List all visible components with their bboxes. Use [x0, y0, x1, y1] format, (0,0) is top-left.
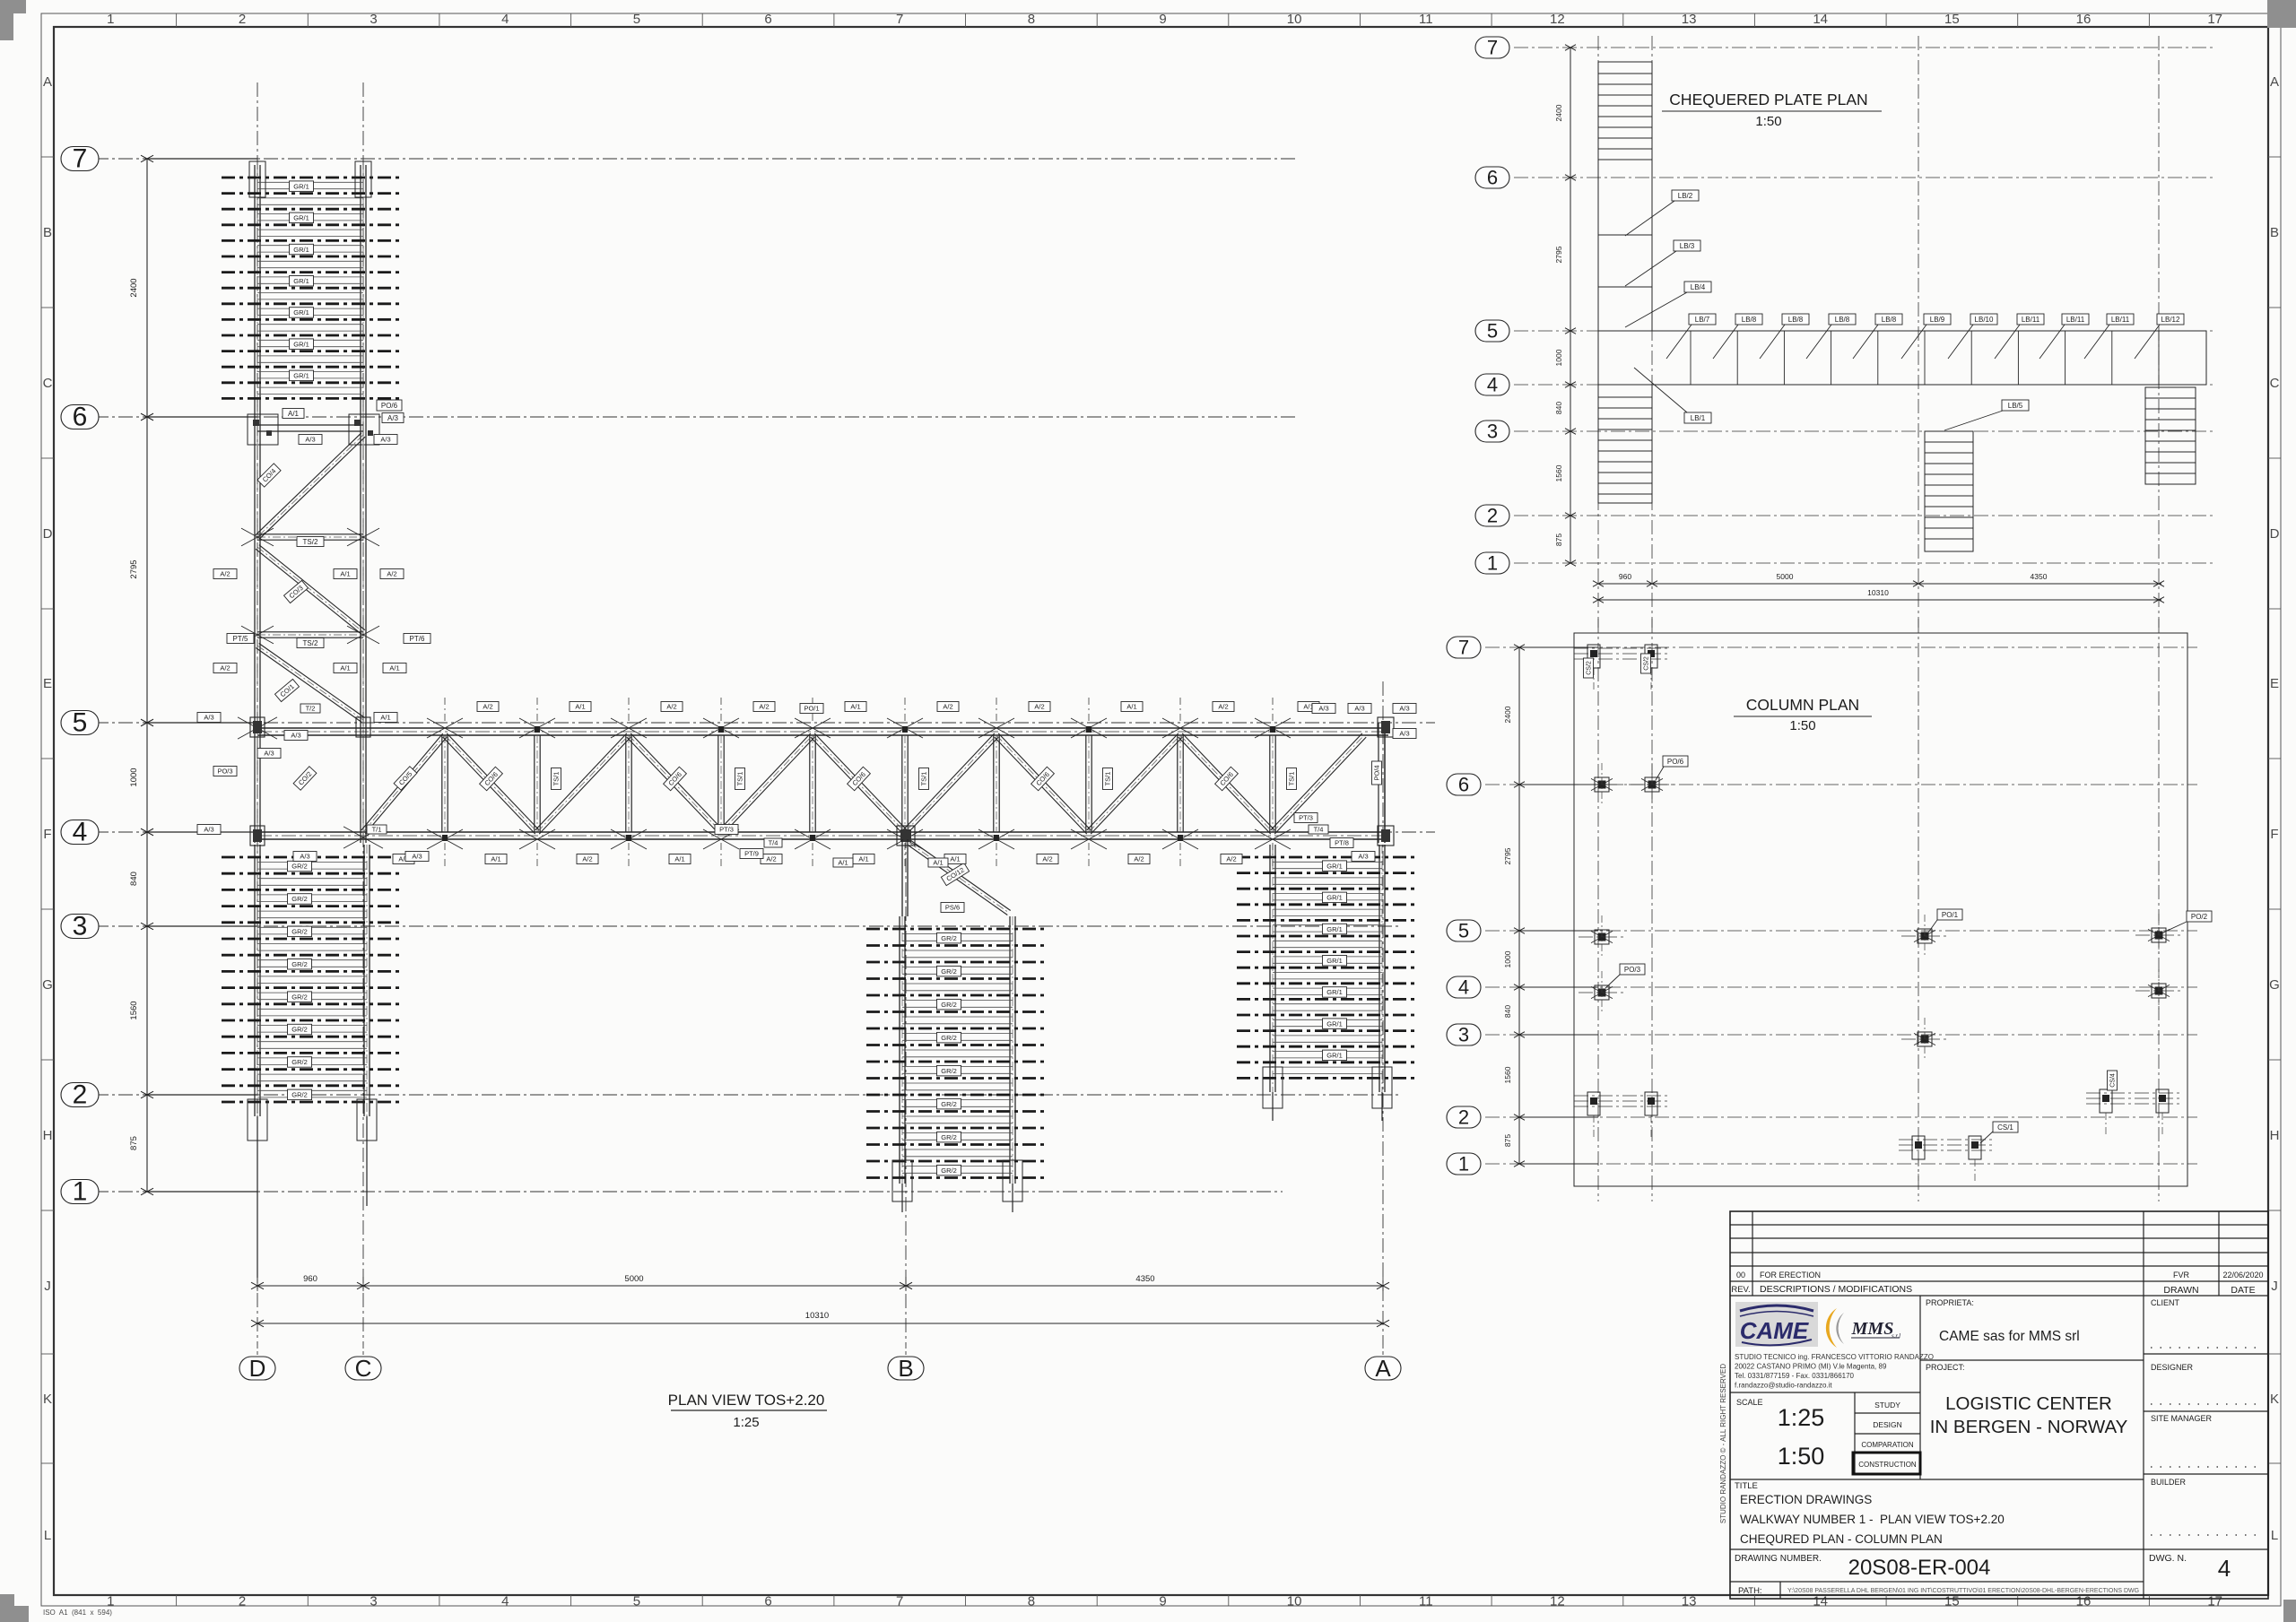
- svg-text:6: 6: [1487, 167, 1498, 189]
- svg-text:GR/2: GR/2: [941, 1133, 957, 1141]
- svg-text:PROPRIETA:: PROPRIETA:: [1926, 1298, 1974, 1307]
- svg-text:Tel. 0331/877159 - Fax. 0331/8: Tel. 0331/877159 - Fax. 0331/866170: [1735, 1372, 1855, 1380]
- svg-text:2795: 2795: [129, 559, 139, 578]
- svg-text:FOR ERECTION: FOR ERECTION: [1760, 1271, 1821, 1279]
- svg-text:PLAN VIEW TOS+2.20: PLAN VIEW TOS+2.20: [668, 1392, 825, 1409]
- svg-text:875: 875: [1503, 1134, 1512, 1147]
- svg-text:BUILDER: BUILDER: [2151, 1478, 2187, 1487]
- svg-text:PT/3: PT/3: [1299, 814, 1313, 822]
- svg-text:DESCRIPTIONS / MODIFICATIONS: DESCRIPTIONS / MODIFICATIONS: [1760, 1284, 1912, 1295]
- svg-text:PO/1: PO/1: [804, 705, 819, 713]
- svg-text:14: 14: [1813, 12, 1828, 27]
- svg-text:A/1: A/1: [389, 664, 399, 672]
- svg-text:GR/2: GR/2: [291, 1091, 308, 1099]
- svg-text:FVR: FVR: [2173, 1271, 2190, 1279]
- svg-text:F: F: [43, 827, 51, 842]
- svg-text:B: B: [2270, 225, 2279, 240]
- svg-text:E: E: [2270, 676, 2279, 691]
- svg-text:5000: 5000: [1777, 572, 1794, 581]
- svg-text:C: C: [43, 376, 53, 391]
- svg-text:10: 10: [1287, 12, 1302, 27]
- svg-text:H: H: [2270, 1128, 2280, 1143]
- svg-text:GR/1: GR/1: [1326, 1052, 1343, 1060]
- svg-text:K: K: [2270, 1392, 2279, 1407]
- svg-text:4: 4: [501, 1594, 509, 1609]
- svg-text:8: 8: [1028, 12, 1035, 27]
- svg-text:1:50: 1:50: [1789, 718, 1815, 733]
- svg-text:LOGISTIC CENTER: LOGISTIC CENTER: [1945, 1393, 2112, 1414]
- svg-text:A/3: A/3: [204, 826, 213, 834]
- svg-text:A/2: A/2: [387, 570, 396, 578]
- svg-text:L: L: [2271, 1528, 2278, 1543]
- svg-text:A/1: A/1: [674, 855, 684, 863]
- svg-text:7: 7: [896, 12, 903, 27]
- svg-text:A/3: A/3: [387, 414, 399, 422]
- svg-text:A/3: A/3: [380, 436, 390, 444]
- svg-text:A/3: A/3: [300, 853, 309, 861]
- svg-text:J: J: [2271, 1279, 2278, 1294]
- svg-text:G: G: [2269, 977, 2280, 993]
- svg-text:A/1: A/1: [491, 855, 500, 863]
- svg-text:PO/1: PO/1: [1942, 911, 1959, 919]
- svg-text:A/1: A/1: [340, 664, 350, 672]
- svg-text:DWG. N.: DWG. N.: [2149, 1553, 2187, 1564]
- svg-text:A/3: A/3: [291, 732, 300, 740]
- svg-text:PO/3: PO/3: [217, 768, 232, 776]
- svg-text:11: 11: [1419, 1594, 1433, 1609]
- svg-text:960: 960: [303, 1274, 317, 1284]
- svg-text:T/4: T/4: [1314, 826, 1324, 834]
- svg-text:A/3: A/3: [264, 750, 274, 758]
- svg-text:2: 2: [73, 1080, 88, 1110]
- svg-text:TS/2: TS/2: [303, 538, 318, 546]
- svg-text:CAME: CAME: [1740, 1317, 1809, 1344]
- svg-text:13: 13: [1682, 12, 1697, 27]
- svg-text:A/2: A/2: [1134, 855, 1144, 863]
- svg-text:2400: 2400: [1503, 706, 1512, 723]
- svg-text:1560: 1560: [1554, 464, 1563, 481]
- svg-text:DRAWING NUMBER.: DRAWING NUMBER.: [1735, 1554, 1822, 1564]
- svg-text:GR/1: GR/1: [293, 277, 309, 285]
- svg-text:GR/2: GR/2: [941, 1067, 957, 1075]
- svg-text:1: 1: [73, 1177, 88, 1207]
- svg-text:ISO A1 (841 x 594): ISO A1 (841 x 594): [43, 1609, 112, 1617]
- svg-text:LB/9: LB/9: [1930, 316, 1945, 324]
- svg-text:GR/1: GR/1: [293, 214, 309, 222]
- svg-text:CS/2: CS/2: [1587, 661, 1593, 675]
- svg-text:2: 2: [1487, 505, 1498, 527]
- svg-text:PO/6: PO/6: [1667, 758, 1684, 766]
- svg-text:840: 840: [129, 872, 139, 886]
- svg-text:T/1: T/1: [372, 826, 382, 834]
- svg-text:IN BERGEN - NORWAY: IN BERGEN - NORWAY: [1930, 1417, 2128, 1437]
- svg-text:B: B: [43, 225, 52, 240]
- svg-text:3: 3: [1487, 421, 1498, 443]
- svg-text:7: 7: [896, 1594, 903, 1609]
- svg-text:LB/7: LB/7: [1695, 316, 1710, 324]
- svg-text:GR/2: GR/2: [291, 960, 308, 968]
- svg-text:GR/1: GR/1: [1326, 957, 1343, 965]
- svg-text:CLIENT: CLIENT: [2151, 1298, 2180, 1307]
- svg-text:GR/1: GR/1: [1326, 925, 1343, 933]
- svg-text:LB/10: LB/10: [1975, 316, 1994, 324]
- svg-text:PO/6: PO/6: [381, 402, 398, 410]
- svg-text:16: 16: [2076, 1594, 2092, 1609]
- svg-text:6: 6: [764, 12, 771, 27]
- svg-text:CHEQUERED PLATE PLAN: CHEQUERED PLATE PLAN: [1669, 91, 1867, 108]
- svg-text:LB/8: LB/8: [1882, 316, 1897, 324]
- svg-text:LB/3: LB/3: [1680, 242, 1695, 250]
- svg-text:A/3: A/3: [1318, 705, 1328, 713]
- svg-text:875: 875: [1554, 533, 1563, 546]
- svg-text:2: 2: [1458, 1106, 1469, 1129]
- svg-text:1560: 1560: [1503, 1066, 1512, 1083]
- svg-text:LB/11: LB/11: [2066, 316, 2085, 324]
- svg-text:LB/4: LB/4: [1691, 283, 1706, 291]
- svg-text:A/3: A/3: [412, 853, 422, 861]
- svg-text:DATE: DATE: [2231, 1285, 2255, 1296]
- svg-text:TS/1: TS/1: [920, 772, 928, 786]
- svg-text:5: 5: [633, 12, 640, 27]
- svg-text:A/3: A/3: [305, 436, 315, 444]
- svg-text:GR/2: GR/2: [941, 1100, 957, 1108]
- svg-text:DESIGN: DESIGN: [1873, 1420, 1902, 1429]
- svg-text:TS/1: TS/1: [1104, 772, 1112, 786]
- svg-text:LB/12: LB/12: [2161, 316, 2180, 324]
- svg-text:2: 2: [239, 12, 246, 27]
- svg-text:5: 5: [73, 708, 88, 738]
- svg-text:TS/1: TS/1: [1288, 772, 1296, 786]
- svg-text:GR/1: GR/1: [293, 340, 309, 348]
- svg-text:A/2: A/2: [1226, 855, 1236, 863]
- svg-text:A/3: A/3: [1358, 853, 1368, 861]
- svg-text:A/2: A/2: [666, 703, 676, 711]
- svg-text:ERECTION DRAWINGS: ERECTION DRAWINGS: [1740, 1493, 1872, 1506]
- svg-text:GR/1: GR/1: [1326, 988, 1343, 996]
- svg-text:D: D: [2270, 526, 2280, 542]
- svg-text:A/2: A/2: [1218, 703, 1228, 711]
- svg-text:LB/8: LB/8: [1742, 316, 1757, 324]
- svg-text:A/1: A/1: [575, 703, 585, 711]
- svg-text:REV.: REV.: [1731, 1285, 1750, 1295]
- svg-text:TS/1: TS/1: [552, 772, 561, 786]
- svg-text:10310: 10310: [805, 1311, 829, 1321]
- svg-text:1:50: 1:50: [1755, 114, 1781, 129]
- svg-text:A/1: A/1: [380, 714, 390, 722]
- svg-text:13: 13: [1682, 1594, 1697, 1609]
- svg-text:GR/1: GR/1: [293, 308, 309, 317]
- svg-text:PS/6: PS/6: [945, 904, 960, 912]
- svg-text:TS/2: TS/2: [303, 639, 318, 647]
- svg-text:f.randazzo@studio-randazzo.it: f.randazzo@studio-randazzo.it: [1735, 1382, 1832, 1390]
- svg-text:4: 4: [73, 818, 88, 847]
- svg-text:J: J: [44, 1279, 51, 1294]
- svg-text:DESIGNER: DESIGNER: [2151, 1363, 2194, 1372]
- svg-text:STUDY: STUDY: [1874, 1401, 1900, 1409]
- svg-text:1560: 1560: [129, 1001, 139, 1019]
- svg-text:5: 5: [633, 1594, 640, 1609]
- svg-text:GR/2: GR/2: [291, 1058, 308, 1066]
- svg-text:1:50: 1:50: [1778, 1443, 1825, 1470]
- svg-text:F: F: [2270, 827, 2278, 842]
- svg-text:LB/11: LB/11: [2022, 316, 2040, 324]
- svg-text:A/3: A/3: [1399, 730, 1409, 738]
- svg-text:1:25: 1:25: [1778, 1404, 1825, 1431]
- svg-text:GR/2: GR/2: [941, 934, 957, 942]
- svg-text:4: 4: [501, 12, 509, 27]
- svg-text:A/1: A/1: [950, 855, 960, 863]
- svg-text:840: 840: [1554, 402, 1563, 414]
- svg-text:G: G: [42, 977, 53, 993]
- svg-text:PT/8: PT/8: [1335, 839, 1349, 847]
- svg-text:A/3: A/3: [1354, 705, 1364, 713]
- svg-text:A/2: A/2: [483, 703, 492, 711]
- svg-text:2795: 2795: [1503, 847, 1512, 864]
- svg-text:E: E: [43, 676, 52, 691]
- svg-text:2400: 2400: [129, 278, 139, 297]
- svg-text:GR/1: GR/1: [293, 372, 309, 380]
- svg-text:A: A: [1375, 1355, 1391, 1382]
- svg-text:960: 960: [1619, 572, 1631, 581]
- svg-text:CS/4: CS/4: [2110, 1073, 2117, 1088]
- svg-text:GR/2: GR/2: [941, 967, 957, 976]
- svg-text:A/1: A/1: [850, 703, 860, 711]
- svg-text:6: 6: [764, 1594, 771, 1609]
- svg-text:T/2: T/2: [306, 705, 316, 713]
- svg-text:LB/11: LB/11: [2111, 316, 2130, 324]
- svg-text:L: L: [44, 1528, 51, 1543]
- svg-text:LB/5: LB/5: [2008, 402, 2023, 410]
- svg-text:GR/2: GR/2: [291, 895, 308, 903]
- svg-text:12: 12: [1550, 1594, 1565, 1609]
- svg-text:A/1: A/1: [858, 855, 868, 863]
- svg-text:7: 7: [1458, 637, 1469, 659]
- svg-text:C: C: [355, 1355, 372, 1382]
- svg-text:3: 3: [370, 1594, 377, 1609]
- svg-text:B: B: [898, 1355, 913, 1382]
- svg-text:LB/8: LB/8: [1835, 316, 1850, 324]
- svg-text:5000: 5000: [624, 1274, 643, 1284]
- svg-text:CONSTRUCTION: CONSTRUCTION: [1858, 1461, 1917, 1469]
- svg-text:A: A: [43, 74, 52, 90]
- svg-text:875: 875: [129, 1136, 139, 1150]
- svg-text:1000: 1000: [1554, 349, 1563, 366]
- svg-text:3: 3: [370, 12, 377, 27]
- svg-text:GR/1: GR/1: [293, 182, 309, 190]
- svg-text:SITE MANAGER: SITE MANAGER: [2151, 1414, 2213, 1423]
- svg-text:15: 15: [1944, 1594, 1960, 1609]
- svg-text:WALKWAY NUMBER 1 - PLAN VIEW: WALKWAY NUMBER 1 - PLAN VIEW TOS+2.20: [1740, 1513, 2005, 1526]
- svg-text:CHEQURED PLAN - COLUMN PLAN: CHEQURED PLAN - COLUMN PLAN: [1740, 1532, 1943, 1546]
- svg-text:TS/1: TS/1: [736, 772, 744, 786]
- svg-text:A/1: A/1: [288, 410, 300, 418]
- svg-text:GR/1: GR/1: [1326, 862, 1343, 870]
- svg-text:A/2: A/2: [220, 570, 230, 578]
- svg-text:1000: 1000: [129, 768, 139, 786]
- svg-text:20S08-ER-004: 20S08-ER-004: [1848, 1556, 1991, 1580]
- svg-text:16: 16: [2076, 12, 2092, 27]
- svg-text:LB/2: LB/2: [1678, 192, 1693, 200]
- svg-text:A/2: A/2: [759, 703, 769, 711]
- svg-text:17: 17: [2207, 1594, 2222, 1609]
- svg-text:PO/2: PO/2: [2191, 913, 2208, 921]
- svg-text:3: 3: [1458, 1024, 1469, 1046]
- svg-text:840: 840: [1503, 1005, 1512, 1018]
- svg-text:4350: 4350: [2031, 572, 2048, 581]
- svg-text:5: 5: [1458, 920, 1469, 942]
- svg-text:A/2: A/2: [1042, 855, 1052, 863]
- svg-text:10310: 10310: [1867, 588, 1889, 597]
- svg-text:C: C: [2270, 376, 2280, 391]
- svg-text:COMPARATION: COMPARATION: [1861, 1441, 1914, 1449]
- svg-text:CS/1: CS/1: [1997, 1123, 2013, 1132]
- svg-text:1:25: 1:25: [733, 1415, 759, 1430]
- svg-text:GR/2: GR/2: [291, 993, 308, 1001]
- svg-text:9: 9: [1159, 1594, 1166, 1609]
- svg-text:CS/2: CS/2: [1644, 656, 1650, 671]
- svg-text:PO/3: PO/3: [1624, 966, 1641, 974]
- svg-text:COLUMN PLAN: COLUMN PLAN: [1746, 696, 1859, 714]
- svg-text:PT/9: PT/9: [744, 850, 759, 858]
- svg-text:10: 10: [1287, 1594, 1302, 1609]
- svg-text:STUDIO RANDAZZO © - ALL RIGHT: STUDIO RANDAZZO © - ALL RIGHT RESERVED: [1719, 1364, 1727, 1523]
- svg-text:PO/4: PO/4: [1373, 765, 1381, 780]
- svg-text:GR/1: GR/1: [293, 246, 309, 254]
- svg-text:2: 2: [239, 1594, 246, 1609]
- svg-text:6: 6: [1458, 774, 1469, 796]
- svg-text:2400: 2400: [1554, 104, 1563, 121]
- svg-text:2795: 2795: [1554, 246, 1563, 263]
- svg-text:GR/2: GR/2: [291, 1026, 308, 1034]
- svg-text:4: 4: [1458, 976, 1469, 999]
- svg-text:15: 15: [1944, 12, 1960, 27]
- svg-text:MMS: MMS: [1851, 1319, 1894, 1339]
- svg-text:9: 9: [1159, 12, 1166, 27]
- svg-text:A/3: A/3: [204, 714, 213, 722]
- svg-text:PT/3: PT/3: [719, 826, 734, 834]
- svg-text:PT/5: PT/5: [233, 635, 248, 643]
- svg-text:6: 6: [73, 403, 88, 432]
- svg-text:LB/8: LB/8: [1788, 316, 1804, 324]
- svg-text:DRAWN: DRAWN: [2163, 1285, 2198, 1296]
- svg-text:A: A: [2270, 74, 2279, 90]
- svg-text:A/2: A/2: [943, 703, 952, 711]
- svg-text:1000: 1000: [1503, 950, 1512, 967]
- svg-text:H: H: [43, 1128, 53, 1143]
- svg-text:3: 3: [73, 912, 88, 941]
- svg-text:D: D: [43, 526, 53, 542]
- svg-text:LB/1: LB/1: [1691, 414, 1706, 422]
- svg-text:1: 1: [107, 12, 114, 27]
- svg-text:GR/1: GR/1: [1326, 1019, 1343, 1028]
- svg-text:GR/2: GR/2: [941, 1001, 957, 1009]
- svg-text:00: 00: [1736, 1271, 1745, 1279]
- svg-text:17: 17: [2207, 12, 2222, 27]
- svg-text:A/3: A/3: [1399, 705, 1409, 713]
- svg-text:PT/6: PT/6: [410, 635, 425, 643]
- svg-text:7: 7: [73, 144, 88, 174]
- svg-text:14: 14: [1813, 1594, 1828, 1609]
- svg-text:1: 1: [1458, 1153, 1469, 1175]
- svg-text:GR/2: GR/2: [941, 1167, 957, 1175]
- svg-text:Y:\20S08 PASSERELLA DHL BERGEN: Y:\20S08 PASSERELLA DHL BERGEN\01 ING IN…: [1787, 1588, 2139, 1594]
- svg-text:s.r.l: s.r.l: [1892, 1332, 1900, 1340]
- svg-text:CAME sas for MMS srl: CAME sas for MMS srl: [1939, 1329, 2080, 1344]
- svg-text:20022 CASTANO PRIMO (MI) V.le: 20022 CASTANO PRIMO (MI) V.le Magenta, 8…: [1735, 1363, 1887, 1371]
- svg-text:4350: 4350: [1135, 1274, 1154, 1284]
- svg-text:A/2: A/2: [220, 664, 230, 672]
- svg-text:1: 1: [107, 1594, 114, 1609]
- svg-text:A/2: A/2: [766, 855, 776, 863]
- svg-text:4: 4: [2218, 1555, 2231, 1582]
- svg-text:A/1: A/1: [340, 570, 350, 578]
- svg-text:A/1: A/1: [933, 859, 943, 867]
- svg-text:STUDIO TECNICO ing. FRANCESCO: STUDIO TECNICO ing. FRANCESCO VITTORIO R…: [1735, 1353, 1934, 1361]
- svg-text:PATH:: PATH:: [1738, 1586, 1762, 1596]
- svg-text:GR/2: GR/2: [291, 863, 308, 871]
- svg-text:T/4: T/4: [769, 839, 778, 847]
- svg-text:GR/1: GR/1: [1326, 894, 1343, 902]
- svg-text:22/06/2020: 22/06/2020: [2222, 1271, 2263, 1279]
- svg-text:K: K: [43, 1392, 52, 1407]
- svg-text:GR/2: GR/2: [291, 928, 308, 936]
- svg-text:PROJECT:: PROJECT:: [1926, 1363, 1965, 1372]
- svg-text:SCALE: SCALE: [1736, 1398, 1763, 1407]
- svg-text:D: D: [249, 1355, 266, 1382]
- svg-text:1: 1: [1487, 552, 1498, 575]
- svg-text:TITLE: TITLE: [1735, 1481, 1758, 1491]
- svg-text:A/1: A/1: [1126, 703, 1136, 711]
- svg-text:11: 11: [1419, 12, 1433, 27]
- svg-text:4: 4: [1487, 374, 1498, 396]
- svg-text:7: 7: [1487, 37, 1498, 59]
- svg-text:5: 5: [1487, 320, 1498, 343]
- svg-text:GR/2: GR/2: [941, 1034, 957, 1042]
- svg-text:8: 8: [1028, 1594, 1035, 1609]
- svg-text:A/2: A/2: [582, 855, 592, 863]
- svg-text:A/2: A/2: [1034, 703, 1044, 711]
- svg-text:A/1: A/1: [838, 859, 848, 867]
- svg-text:12: 12: [1550, 12, 1565, 27]
